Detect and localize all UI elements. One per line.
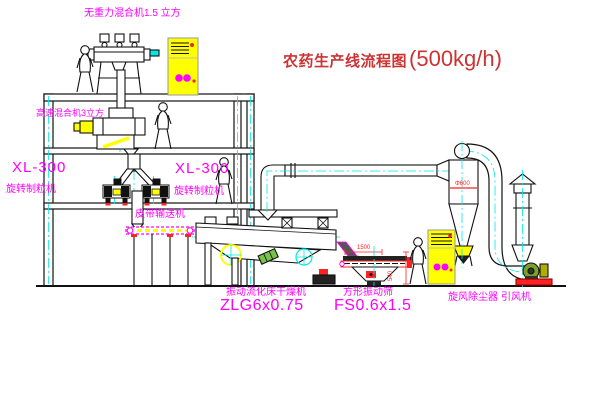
control-cabinet-right [428,230,455,284]
label-screen-model: FS0.6x1.5 [334,298,411,314]
dimension-cyclone-diameter: Φ600 [455,181,470,187]
vibrating-screen [337,242,412,286]
label-cyclone: 旋风除尘器 [448,293,498,303]
gravity-free-mixer [88,34,159,118]
label-high-speed-mixer: 高速混合机3立方 [36,109,104,118]
control-cabinet-top [168,38,198,95]
label-dryer-model: ZLG6x0.75 [220,298,304,314]
granulator-left [103,179,130,206]
belt-conveyor [126,227,194,285]
exhaust-duct [261,160,460,212]
fluid-bed-dryer [196,210,337,285]
diagram-title: 农药生产线流程图 (500kg/h) [283,46,502,72]
label-belt-conveyor: 皮带输送机 [135,210,185,220]
label-gravity-mixer: 无重力混合机1.5 立方 [84,9,181,19]
label-granulator-right-model: XL-300 [175,161,229,176]
dimension-screen-length: 1500 [357,245,370,251]
title-text: 农药生产线流程图 [283,50,407,71]
granulator-right [142,179,169,206]
process-flow-diagram: 农药生产线流程图 (500kg/h) 无重力混合机1.5 立方 高速混合机3立方… [0,0,600,403]
label-granulator-right-name: 旋转制粒机 [174,187,224,197]
label-granulator-left-model: XL-300 [12,160,66,175]
title-capacity: (500kg/h) [409,46,502,72]
person-figure-second-floor [155,103,171,149]
label-fan: 引风机 [501,293,531,303]
person-figure-ground [410,238,426,284]
label-granulator-left-name: 旋转制粒机 [6,185,56,195]
dimension-screen-height: 540 [388,271,394,281]
